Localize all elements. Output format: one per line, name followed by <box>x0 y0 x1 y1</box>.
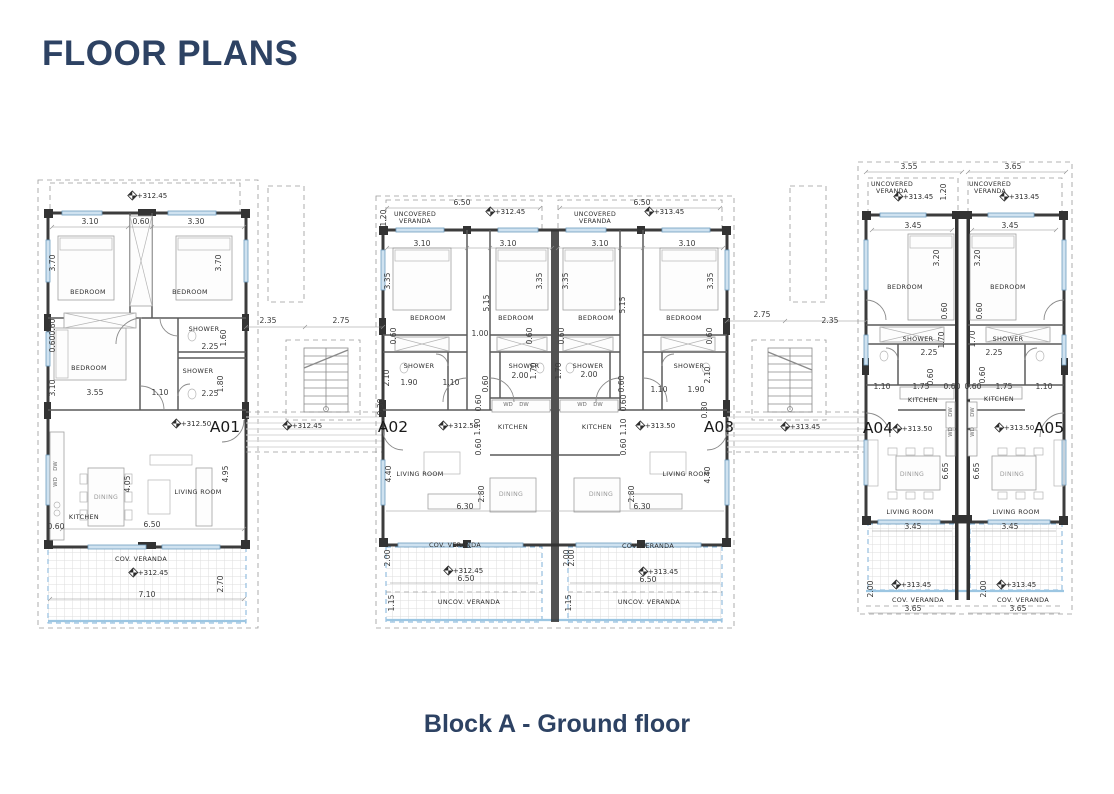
dimension-label: 2.80 <box>477 485 486 502</box>
dimension-label: 0.60 <box>474 438 483 455</box>
appliance-label: DW <box>948 407 954 417</box>
appliance-label: DW <box>593 402 603 408</box>
appliance-label: WD <box>503 402 512 408</box>
dimension-label: 2.25 <box>921 348 938 357</box>
dimension-label: 0.30 <box>700 401 709 418</box>
dimension-label: 0.60 <box>474 394 483 411</box>
dimension-label: 6.50 <box>144 520 161 529</box>
dimension-label: 2.25 <box>986 348 1003 357</box>
elevation-marker-icon <box>439 421 448 430</box>
dimension-label: 3.45 <box>1002 522 1019 531</box>
stairs-right <box>727 186 866 452</box>
elevation-label: +312.50 <box>181 420 211 428</box>
dimension-label: 1.10 <box>152 388 169 397</box>
dimension-label: 3.10 <box>414 239 431 248</box>
dimension-label: 2.00 <box>866 580 875 597</box>
dimension-label: 1.10 <box>619 418 628 435</box>
elevation-label: +313.45 <box>790 423 820 431</box>
dimension-label: 1.10 <box>473 418 482 435</box>
dimension-label: 2.10 <box>382 369 391 386</box>
dimension-label: 0.60 <box>557 327 566 344</box>
dimension-label: 6.50 <box>634 198 651 207</box>
dimension-label: 0.30 <box>376 398 385 415</box>
dimension-label: 2.00 <box>512 371 529 380</box>
dimension-label: 1.10 <box>443 378 460 387</box>
room-label: COV. VERANDA <box>115 555 167 563</box>
room-label: BEDROOM <box>410 314 446 322</box>
room-label: SHOWER <box>674 362 705 370</box>
room-label: DINING <box>499 491 523 498</box>
dimension-label: 4.40 <box>703 466 712 483</box>
dimension-label: 3.35 <box>706 272 715 289</box>
appliance-label: WD <box>970 427 976 436</box>
dimension-label: 2.35 <box>822 316 839 325</box>
elevation-marker-icon <box>636 421 645 430</box>
dimension-label: 3.20 <box>932 249 941 266</box>
dimension-label: 3.70 <box>48 254 57 271</box>
dimension-label: 3.55 <box>87 388 104 397</box>
dimension-label: 3.10 <box>82 217 99 226</box>
dimension-label: 4.95 <box>221 465 230 482</box>
appliance-label: WD <box>53 477 59 486</box>
dimension-label: 2.00 <box>581 370 598 379</box>
dimension-label: 0.60 <box>940 302 949 319</box>
elevation-marker-icon <box>172 419 181 428</box>
room-label: BEDROOM <box>578 314 614 322</box>
dimension-label: 6.30 <box>634 502 651 511</box>
room-label: LIVING ROOM <box>174 488 221 496</box>
dimension-label: 0.60 <box>617 375 626 392</box>
dimension-label: 1.75 <box>996 382 1013 391</box>
dimension-label: 2.10 <box>703 366 712 383</box>
dimension-label: 4.05 <box>123 475 132 492</box>
elevation-label: +312.45 <box>495 208 525 216</box>
room-label: SHOWER <box>183 367 214 375</box>
room-label: SHOWER <box>993 335 1024 343</box>
dimension-label: 0.60 <box>48 522 65 531</box>
elevation-label: +313.45 <box>654 208 684 216</box>
dimension-label: 0.60 <box>481 375 490 392</box>
dimension-label: 0.60 <box>975 302 984 319</box>
room-label: KITCHEN <box>984 395 1014 403</box>
dimension-label: 1.70 <box>529 362 538 379</box>
dimension-label: 3.65 <box>1005 162 1022 171</box>
room-label: COV. VERANDA <box>892 596 944 604</box>
dimension-label: 0.60 <box>978 366 987 383</box>
dimension-label: 2.35 <box>260 316 277 325</box>
dimension-label: 2.75 <box>333 316 350 325</box>
dimension-label: 1.70 <box>968 330 977 347</box>
room-label: UNCOV. VERANDA <box>618 598 681 606</box>
dimension-label: 1.10 <box>874 382 891 391</box>
room-label: KITCHEN <box>498 423 528 431</box>
dimension-label: 3.10 <box>500 239 517 248</box>
elevation-label: +313.50 <box>645 422 675 430</box>
unit-label: A01 <box>210 418 240 436</box>
room-label: DINING <box>94 494 118 501</box>
dimension-label: 4.40 <box>384 465 393 482</box>
room-label: LIVING ROOM <box>886 508 933 516</box>
dimension-label: 1.20 <box>379 209 388 226</box>
dimension-label: 2.70 <box>216 575 225 592</box>
room-label: BEDROOM <box>990 283 1026 291</box>
dimension-label: 3.45 <box>1002 221 1019 230</box>
room-label: BEDROOM <box>887 283 923 291</box>
dimension-label: 1.90 <box>401 378 418 387</box>
elevation-label: +313.50 <box>1004 424 1034 432</box>
dimension-label: 0.60 <box>619 394 628 411</box>
dimension-label: 3.35 <box>383 272 392 289</box>
dimension-label: 7.10 <box>139 590 156 599</box>
room-label: LIVING ROOM <box>992 508 1039 516</box>
dimension-label: 3.65 <box>1010 604 1027 613</box>
dimension-label: 1.15 <box>387 594 396 611</box>
dimension-label: 0.60 <box>389 327 398 344</box>
dimension-label: 3.65 <box>905 604 922 613</box>
dimension-label: 1.80 <box>216 375 225 392</box>
dimension-label: 6.65 <box>941 462 950 479</box>
room-label: SHOWER <box>189 325 220 333</box>
room-label: DINING <box>900 471 924 478</box>
dimension-label: 3.45 <box>905 221 922 230</box>
elevation-marker-icon <box>486 207 495 216</box>
dimension-label: 2.00 <box>383 549 392 566</box>
dimension-label: 6.65 <box>972 462 981 479</box>
dimension-label: 2.75 <box>754 310 771 319</box>
elevation-label: +313.45 <box>903 193 933 201</box>
dimension-label: 3.20 <box>973 249 982 266</box>
dimension-label: 1.90 <box>688 385 705 394</box>
appliance-label: DW <box>53 461 59 471</box>
dimension-label: 6.50 <box>640 575 657 584</box>
room-label: COV. VERANDA <box>429 541 481 549</box>
dimension-label: 2.00 <box>567 549 576 566</box>
room-label: BEDROOM <box>498 314 534 322</box>
room-label: DINING <box>1000 471 1024 478</box>
room-label: COV. VERANDA <box>997 596 1049 604</box>
dimension-label: 3.45 <box>905 522 922 531</box>
room-label: BEDROOM <box>70 288 106 296</box>
dimension-label: 0.60 <box>965 382 982 391</box>
middle-building <box>376 196 734 628</box>
elevation-label: +313.45 <box>1009 193 1039 201</box>
elevation-label: +313.45 <box>901 581 931 589</box>
dimension-label: 3.10 <box>592 239 609 248</box>
appliance-label: WD <box>948 427 954 436</box>
elevation-marker-icon <box>128 191 137 200</box>
dimension-label: 5.15 <box>482 294 491 311</box>
dimension-label: 2.25 <box>202 342 219 351</box>
dimension-label: 3.30 <box>188 217 205 226</box>
dimension-label: 3.10 <box>679 239 696 248</box>
dimension-label: 2.00 <box>979 580 988 597</box>
room-label: UNCOVEREDVERANDA <box>394 211 436 225</box>
dimension-label: 1.10 <box>1036 382 1053 391</box>
room-label: BEDROOM <box>71 364 107 372</box>
appliance-label: DW <box>519 402 529 408</box>
elevation-label: +312.45 <box>138 569 168 577</box>
dimension-label: 0.60 <box>619 438 628 455</box>
dimension-label: 1.20 <box>939 183 948 200</box>
floor-plans-page: FLOOR PLANS <box>0 0 1114 794</box>
dimension-label: 3.35 <box>561 272 570 289</box>
dimension-label: 6.30 <box>457 502 474 511</box>
unit-label: A03 <box>704 418 734 436</box>
room-label: SHOWER <box>404 362 435 370</box>
dimension-label: 1.00 <box>472 329 489 338</box>
elevation-marker-icon <box>645 207 654 216</box>
unit-label: A04 <box>863 419 893 437</box>
dimension-label: 1.60 <box>219 329 228 346</box>
dimension-label: 3.35 <box>535 272 544 289</box>
dimension-label: 6.50 <box>454 198 471 207</box>
room-label: DINING <box>589 491 613 498</box>
room-label: KITCHEN <box>908 396 938 404</box>
floor-plan-drawing: +312.453.100.603.303.703.70BEDROOMBEDROO… <box>0 0 1114 794</box>
dimension-label: 0.60 <box>48 318 57 335</box>
room-label: KITCHEN <box>582 423 612 431</box>
door-arcs <box>866 300 1064 437</box>
elevation-label: +312.45 <box>292 422 322 430</box>
dimension-label: 3.55 <box>901 162 918 171</box>
room-label: BEDROOM <box>666 314 702 322</box>
dimension-label: 3.10 <box>48 379 57 396</box>
room-label: UNCOV. VERANDA <box>438 598 501 606</box>
dimension-label: 1.70 <box>937 331 946 348</box>
dimension-label: 5.15 <box>618 296 627 313</box>
elevation-label: +313.50 <box>902 425 932 433</box>
dimension-label: 2.80 <box>627 485 636 502</box>
dimension-label: 0.60 <box>525 327 534 344</box>
room-label: SHOWER <box>903 335 934 343</box>
elevation-marker-icon <box>893 424 902 433</box>
dimension-label: 0.60 <box>48 335 57 352</box>
dimension-label: 3.70 <box>214 254 223 271</box>
appliance-label: DW <box>970 407 976 417</box>
room-label: COV. VERANDA <box>622 542 674 550</box>
drawing-caption: Block A - Ground floor <box>0 710 1114 739</box>
elevation-label: +313.45 <box>1006 581 1036 589</box>
room-label: KITCHEN <box>69 513 99 521</box>
dimension-label: 0.60 <box>133 217 150 226</box>
dimension-label: 1.10 <box>651 385 668 394</box>
appliance-label: WD <box>577 402 586 408</box>
room-label: BEDROOM <box>172 288 208 296</box>
room-label: SHOWER <box>573 362 604 370</box>
elevation-label: +312.45 <box>137 192 167 200</box>
dimension-label: 1.75 <box>913 382 930 391</box>
room-label: UNCOVEREDVERANDA <box>574 211 616 225</box>
dimension-label: 0.60 <box>944 382 961 391</box>
unit-label: A02 <box>378 418 408 436</box>
dimension-label: 0.60 <box>705 327 714 344</box>
room-label: LIVING ROOM <box>396 470 443 478</box>
elevation-marker-icon <box>995 423 1004 432</box>
dimension-label: 1.70 <box>554 362 563 379</box>
dimension-label: 1.15 <box>564 594 573 611</box>
dimension-label: 6.50 <box>458 574 475 583</box>
unit-label: A05 <box>1034 419 1064 437</box>
